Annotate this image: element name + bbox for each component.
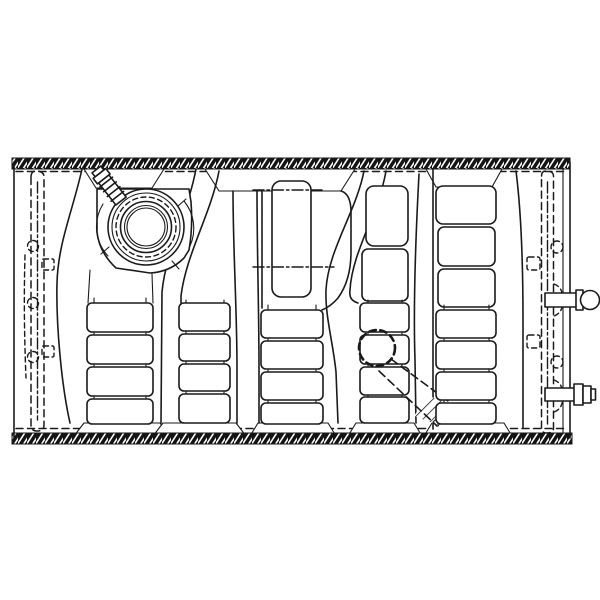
channel-c-right — [257, 191, 259, 423]
fuel-tank-technical-drawing — [0, 0, 600, 600]
top-seam-flange — [12, 158, 570, 169]
strap-slot — [527, 335, 540, 348]
access-plate — [272, 181, 311, 297]
strap-hole — [28, 352, 39, 363]
left-strap — [24, 171, 54, 431]
boss-transition — [88, 270, 153, 303]
channel-f — [516, 171, 523, 428]
rib-column-5 — [436, 186, 496, 424]
channel-a — [57, 169, 82, 423]
drawing-stage — [0, 0, 600, 600]
rib4-top-panel — [366, 186, 408, 246]
rib-stack-1 — [87, 303, 153, 424]
hose-fitting-upper — [545, 290, 600, 310]
rib-stack-3 — [261, 310, 323, 424]
channel-e-left — [414, 174, 419, 423]
filler-column — [87, 165, 194, 424]
strap-edge-left — [24, 255, 26, 378]
channel-d-left — [326, 171, 364, 423]
strap-slot — [527, 257, 540, 270]
channel-c-left — [233, 191, 237, 423]
rib-column-2 — [179, 300, 230, 423]
bottom-seam-flange — [12, 433, 572, 444]
